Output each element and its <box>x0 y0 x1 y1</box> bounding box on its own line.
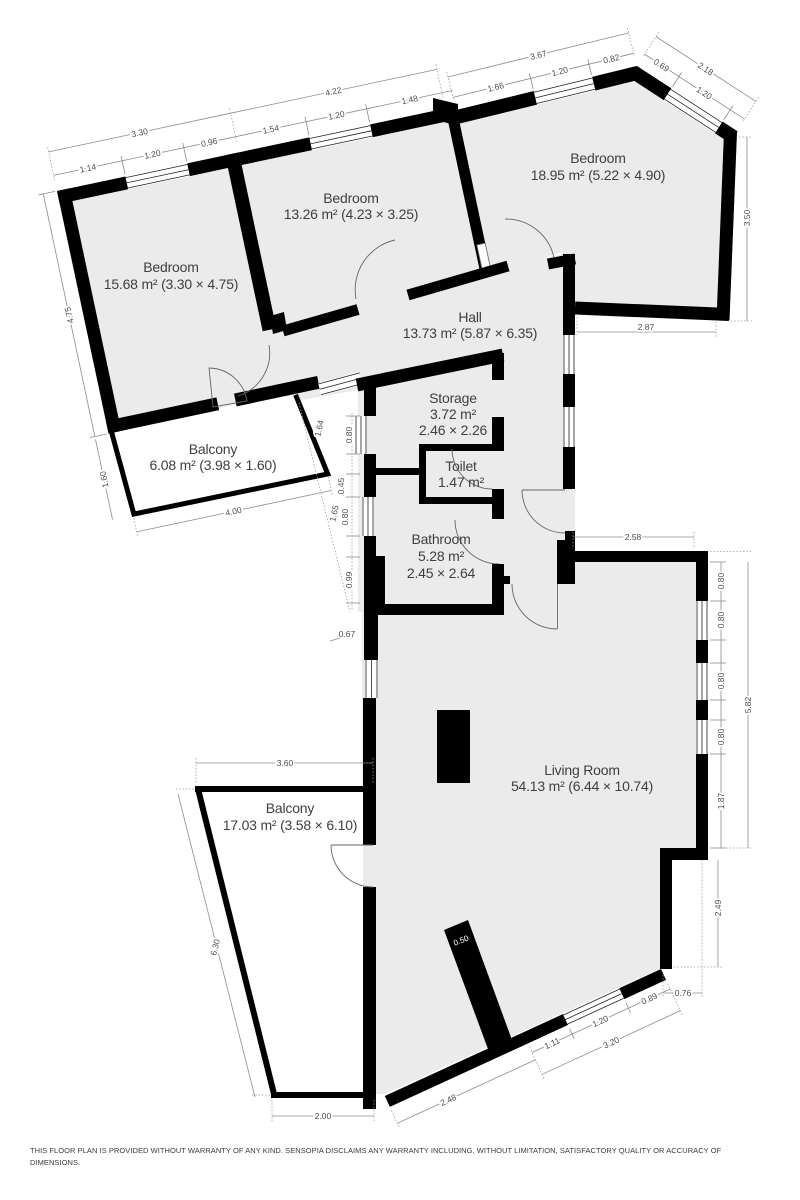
svg-text:2.45 × 2.64: 2.45 × 2.64 <box>407 565 476 581</box>
svg-text:5.28 m²: 5.28 m² <box>418 548 465 564</box>
svg-text:Living Room: Living Room <box>544 762 620 778</box>
svg-text:THIS FLOOR PLAN IS PROVIDED WI: THIS FLOOR PLAN IS PROVIDED WITHOUT WARR… <box>30 1146 722 1155</box>
svg-text:6.08 m² (3.98 × 1.60): 6.08 m² (3.98 × 1.60) <box>150 457 277 473</box>
svg-text:1.47 m²: 1.47 m² <box>438 474 485 490</box>
svg-text:15.68 m² (3.30 × 4.75): 15.68 m² (3.30 × 4.75) <box>104 276 239 292</box>
svg-text:0.76: 0.76 <box>675 988 692 998</box>
svg-text:13.73 m² (5.87 × 6.35): 13.73 m² (5.87 × 6.35) <box>403 325 538 341</box>
svg-text:5.82: 5.82 <box>743 696 753 713</box>
svg-text:Storage: Storage <box>429 390 477 406</box>
svg-text:2.46 × 2.26: 2.46 × 2.26 <box>419 422 488 438</box>
svg-text:2.49: 2.49 <box>713 899 723 916</box>
svg-text:0.45: 0.45 <box>336 477 346 494</box>
svg-text:2.87: 2.87 <box>638 322 655 332</box>
svg-text:DIMENSIONS.: DIMENSIONS. <box>30 1158 80 1167</box>
svg-text:3.60: 3.60 <box>277 758 294 768</box>
svg-text:54.13 m² (6.44 × 10.74): 54.13 m² (6.44 × 10.74) <box>511 778 653 794</box>
svg-text:0.80: 0.80 <box>716 611 726 628</box>
svg-text:2.00: 2.00 <box>315 1111 332 1121</box>
svg-text:0.99: 0.99 <box>344 571 354 588</box>
svg-text:3.50: 3.50 <box>742 209 752 226</box>
svg-text:2.58: 2.58 <box>625 532 642 542</box>
svg-text:3.72 m²: 3.72 m² <box>430 406 477 422</box>
svg-text:Hall: Hall <box>458 309 481 325</box>
svg-text:Balcony: Balcony <box>189 441 238 457</box>
svg-text:Balcony: Balcony <box>266 800 315 816</box>
svg-text:0.80: 0.80 <box>716 672 726 689</box>
svg-text:0.67: 0.67 <box>339 629 356 639</box>
svg-text:0.80: 0.80 <box>344 426 354 443</box>
svg-text:Bedroom: Bedroom <box>570 150 625 166</box>
svg-text:Bedroom: Bedroom <box>323 190 378 206</box>
svg-text:18.95 m² (5.22 × 4.90): 18.95 m² (5.22 × 4.90) <box>531 167 666 183</box>
svg-text:Bedroom: Bedroom <box>143 259 198 275</box>
svg-text:0.80: 0.80 <box>716 728 726 745</box>
svg-text:Toilet: Toilet <box>445 458 477 474</box>
svg-text:0.80: 0.80 <box>340 508 350 525</box>
svg-text:Bathroom: Bathroom <box>411 531 470 547</box>
svg-text:0.80: 0.80 <box>716 572 726 589</box>
svg-text:13.26 m² (4.23 × 3.25): 13.26 m² (4.23 × 3.25) <box>284 206 419 222</box>
svg-text:17.03 m² (3.58 × 6.10): 17.03 m² (3.58 × 6.10) <box>223 817 358 833</box>
svg-text:1.87: 1.87 <box>716 792 726 809</box>
